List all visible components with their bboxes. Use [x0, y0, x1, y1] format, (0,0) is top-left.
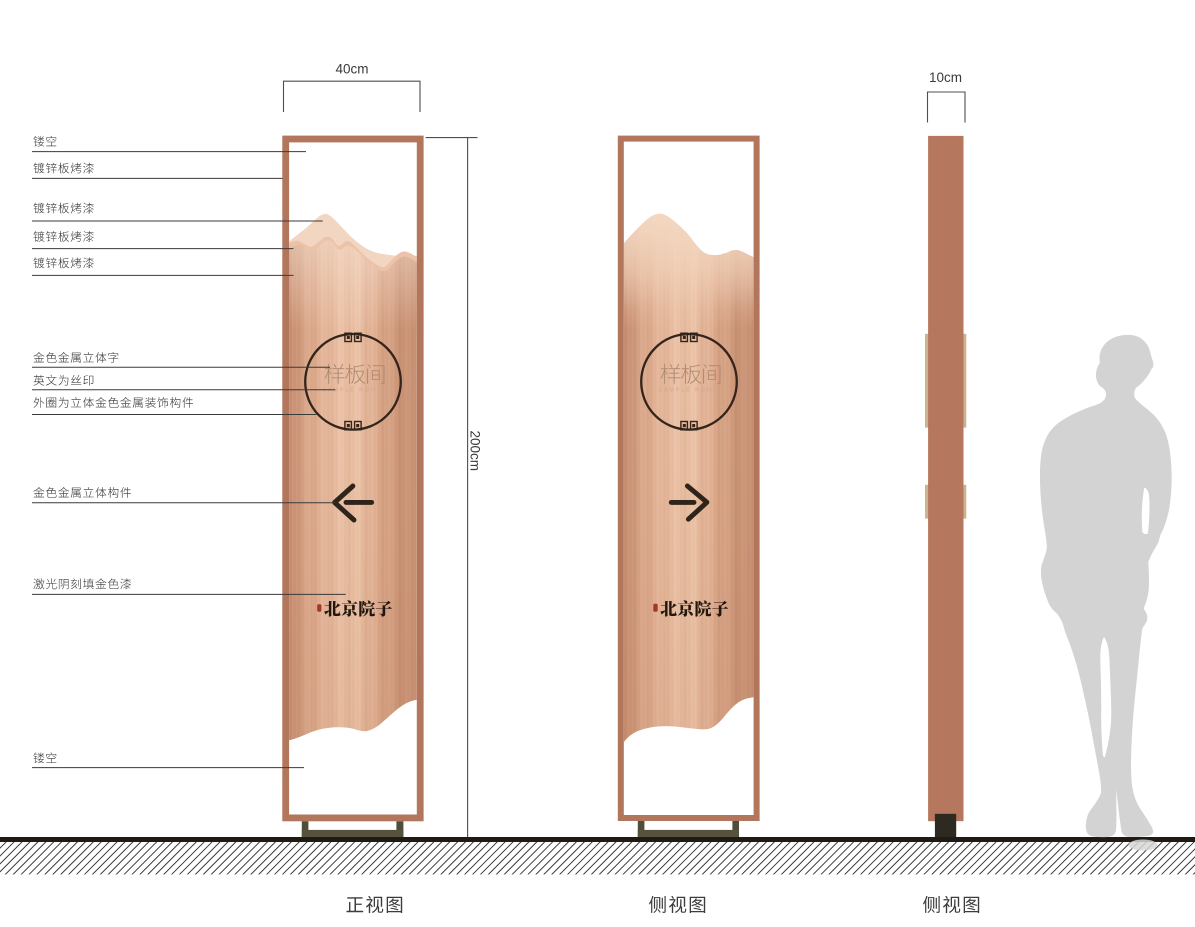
svg-text:SAMPLE ROOM: SAMPLE ROOM — [322, 387, 383, 393]
svg-text:SAMPLE ROOM: SAMPLE ROOM — [658, 387, 719, 393]
svg-text:10cm: 10cm — [929, 70, 962, 85]
svg-text:200cm: 200cm — [468, 431, 483, 472]
svg-text:40cm: 40cm — [335, 62, 368, 77]
